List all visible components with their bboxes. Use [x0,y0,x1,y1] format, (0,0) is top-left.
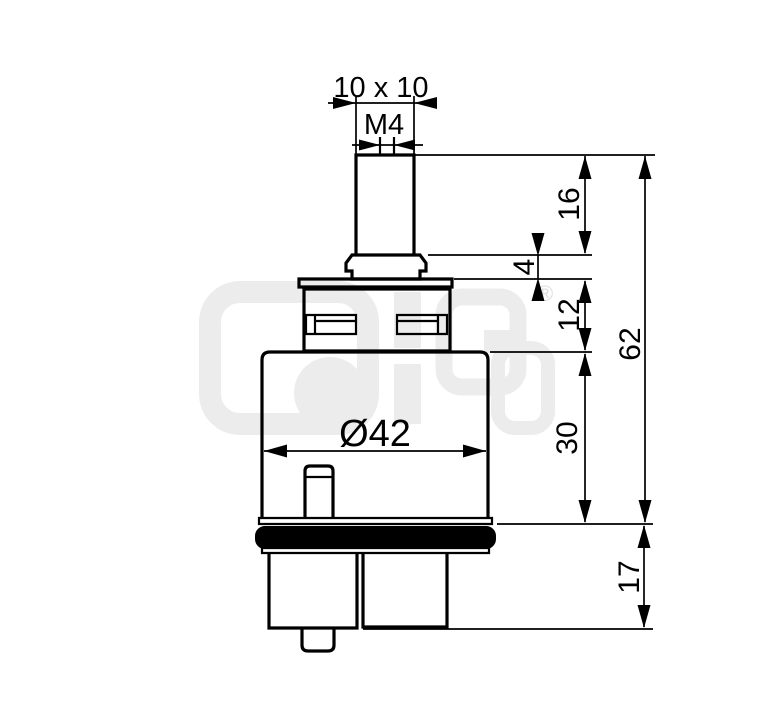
arrow [579,156,592,179]
arrow [579,231,592,254]
technical-drawing-page: ® [0,0,767,709]
arrow [639,500,652,523]
arrow [579,353,592,376]
arrow [394,140,415,151]
label-body-diameter: Ø42 [339,413,411,455]
label-collar-height: 4 [508,259,541,276]
bottom-nub [302,628,334,651]
arrow [264,445,287,458]
label-clip-section-height: 12 [553,298,586,331]
arrow [638,605,651,628]
label-stem-height: 16 [553,187,586,220]
arrow [359,140,380,151]
o-ring-seal [256,527,495,548]
cartridge-technical-drawing: ® [0,0,767,709]
label-body-height: 30 [551,421,584,454]
alignment-rib [305,466,333,518]
stem-base-outline [346,255,426,279]
clip-window-left [306,315,356,334]
arrow [463,445,486,458]
foot-right [363,553,447,627]
clip-window-left-detail [315,315,356,334]
arrow [638,525,651,548]
label-overall-height: 62 [614,327,647,360]
groove-strip-bottom [262,548,489,553]
arrow [532,233,545,256]
label-stem-cross-section: 10 x 10 [333,72,428,104]
groove-strip-top [259,518,492,524]
foot-left [269,553,357,628]
arrow [639,156,652,179]
stem-outline [356,155,414,255]
arrow [579,500,592,523]
label-thread: M4 [364,109,404,141]
label-foot-height: 17 [613,560,646,593]
